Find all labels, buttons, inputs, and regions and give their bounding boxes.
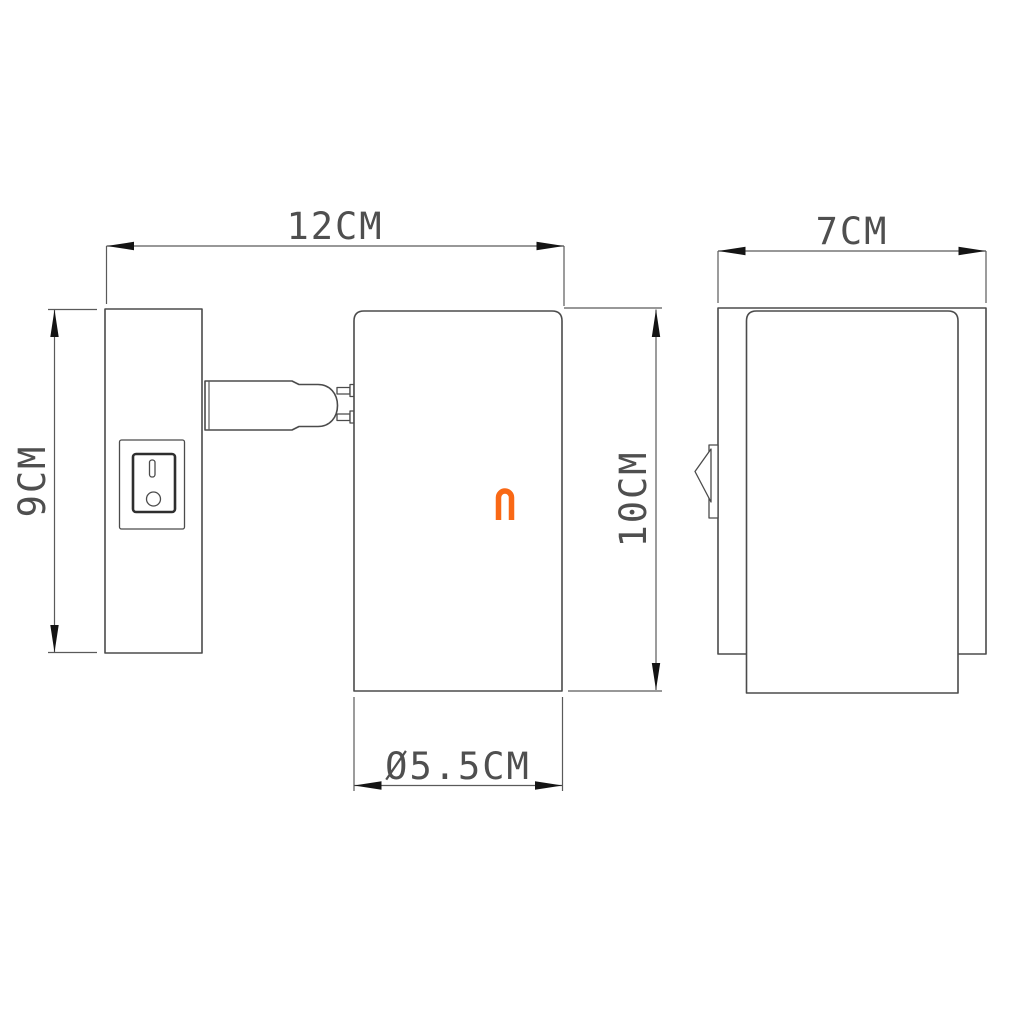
dim-depth: 7CM [718,210,986,303]
dim-plate-label: 9CM [11,445,54,518]
arrow-left-icon [718,247,746,255]
side-switch-lever [695,449,711,502]
swivel-arm [205,381,338,430]
arrow-right-icon [959,247,987,255]
dim-width-label: 12CM [286,205,383,248]
dim-overall-width: 12CM [107,205,565,306]
dim-head-diameter: Ø5.5CM [354,697,563,791]
arrow-left-icon [107,242,135,250]
front-lamp-head [354,311,562,691]
dim-dia-label: Ø5.5CM [385,745,531,788]
dim-backplate-height: 9CM [11,310,97,653]
side-lamp-head [747,311,959,693]
arrow-right-icon [537,242,565,250]
arrow-down-icon [50,625,58,653]
side-view [695,308,986,693]
arrow-down-icon [652,663,660,690]
dim-head-label: 10CM [612,450,655,547]
dim-head-height: 10CM [564,308,662,691]
technical-drawing-page: 12CM 9CM 10CM Ø5.5CM [0,0,1010,1010]
dim-depth-label: 7CM [816,210,889,253]
front-view [105,309,562,691]
arrow-left-icon [354,781,382,789]
joint-pin-top [337,388,350,395]
arrow-right-icon [535,781,563,789]
switch-rocker [133,454,175,512]
joint-pin-bottom [337,414,350,421]
arrow-up-icon [652,310,660,338]
arrow-up-icon [50,310,58,338]
wall-lamp-dimension-drawing: 12CM 9CM 10CM Ø5.5CM [0,0,1010,1010]
